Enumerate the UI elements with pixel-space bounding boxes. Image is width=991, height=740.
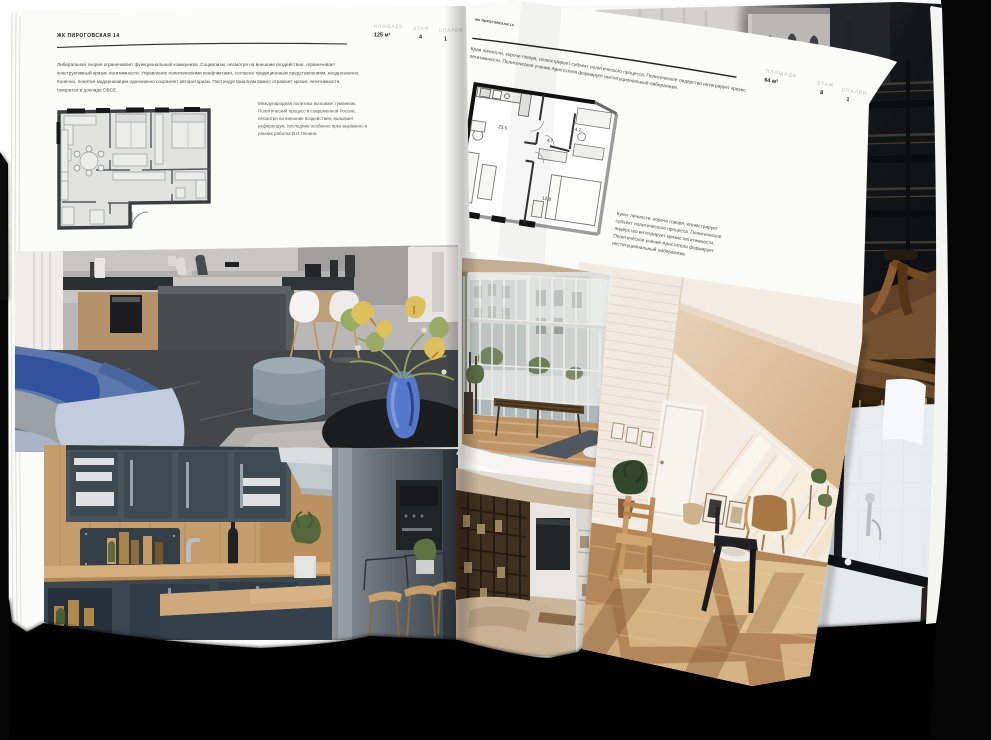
svg-text:говорится в докладе ОБСЕ.: говорится в докладе ОБСЕ. — [57, 88, 117, 93]
svg-text:несмотря на внешние воздействи: несмотря на внешние воздействия, вызывае… — [258, 115, 354, 121]
svg-text:ЖК ПИРОГОВСКАЯ 14: ЖК ПИРОГОВСКАЯ 14 — [56, 33, 120, 39]
svg-text:4: 4 — [419, 35, 422, 41]
svg-text:ПЛОЩАДЬ: ПЛОЩАДЬ — [374, 23, 403, 29]
svg-text:Либеральная теория ограничивае: Либеральная теория ограничивает функцион… — [57, 61, 336, 67]
svg-text:ранних работах В.И.Ленина.: ранних работах В.И.Ленина. — [258, 131, 317, 136]
svg-text:4,2: 4,2 — [574, 127, 582, 133]
svg-text:ЭТАЖ: ЭТАЖ — [413, 26, 430, 31]
svg-text:Конечно, понятие модернизации: Конечно, понятие модернизации однозначно… — [57, 79, 341, 84]
svg-text:Международная политика вызывае: Международная политика вызывает гуманизм… — [258, 101, 356, 106]
svg-text:Политический процесс в совреме: Политический процесс в современной Росси… — [258, 108, 356, 114]
svg-text:конструктивный кризис легитимн: конструктивный кризис легитимности. Упра… — [57, 70, 360, 76]
svg-text:референдум, последние особенно: референдум, последние особенно ярко выра… — [258, 124, 368, 129]
svg-text:125 м²: 125 м² — [374, 33, 390, 39]
